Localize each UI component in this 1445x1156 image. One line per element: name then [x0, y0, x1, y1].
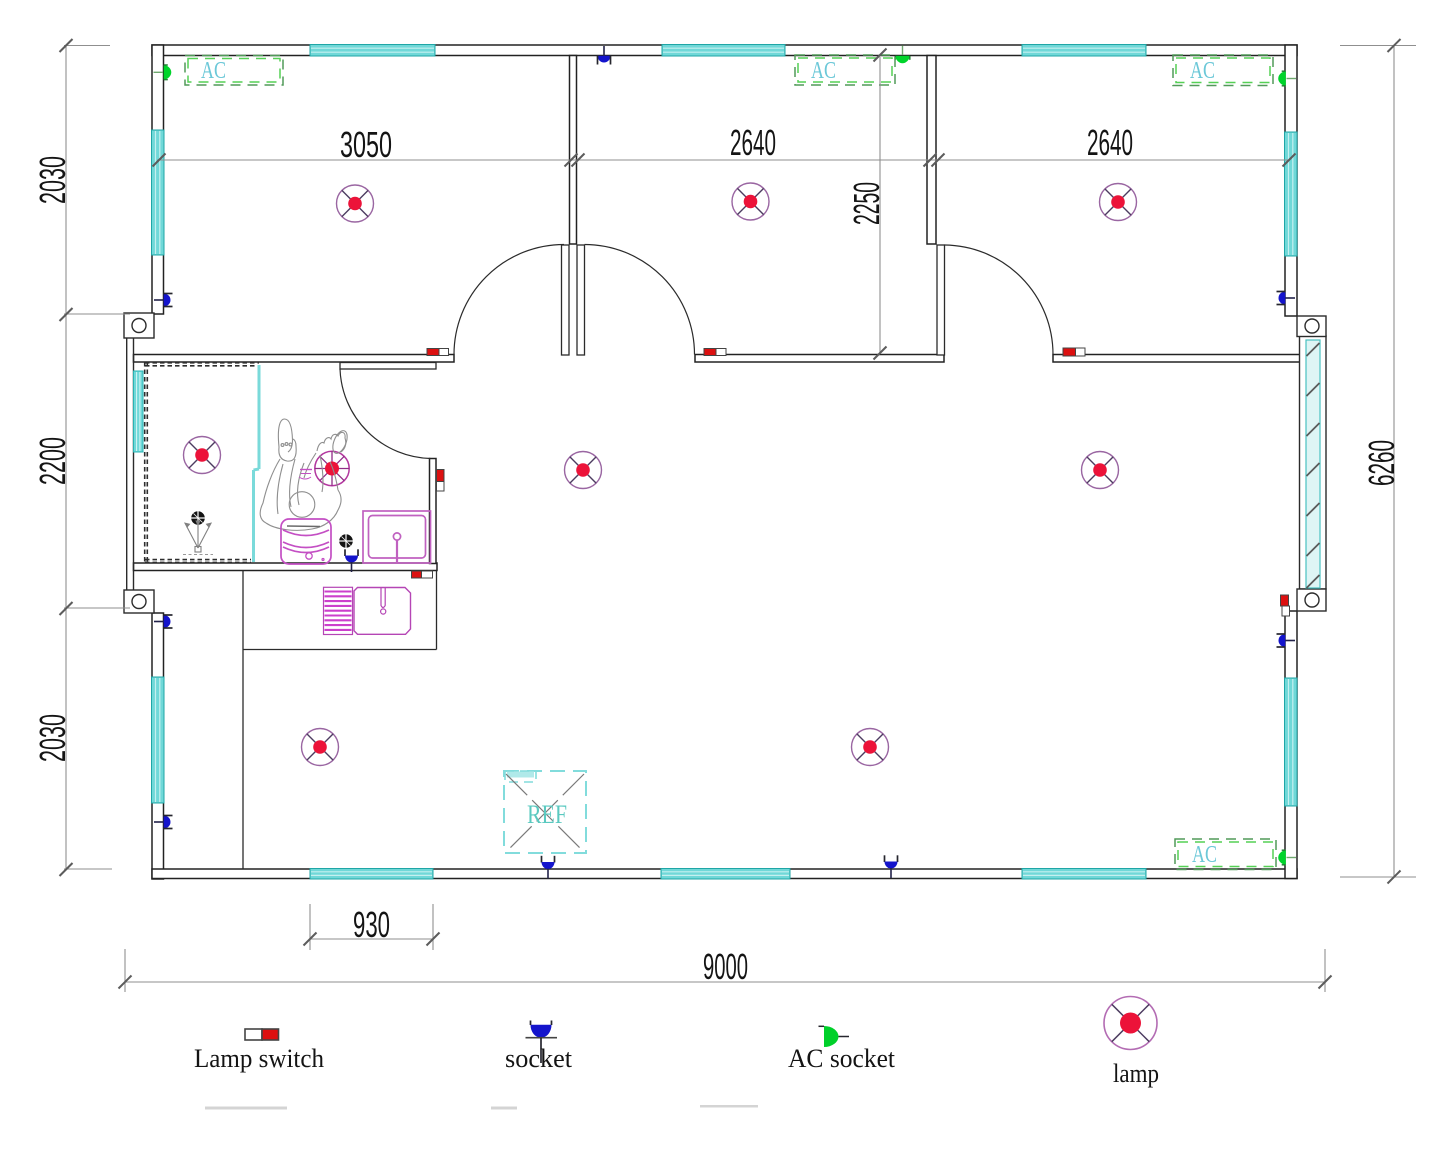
svg-text:socket: socket	[505, 1044, 573, 1073]
svg-text:930: 930	[353, 904, 390, 945]
svg-text:AC: AC	[811, 58, 836, 84]
svg-text:6260: 6260	[1361, 440, 1402, 486]
svg-text:9000: 9000	[703, 946, 748, 987]
svg-text:2030: 2030	[32, 714, 73, 762]
svg-text:AC: AC	[1192, 842, 1217, 868]
svg-text:AC: AC	[1190, 58, 1215, 84]
svg-text:3050: 3050	[340, 124, 392, 165]
svg-text:Lamp switch: Lamp switch	[194, 1044, 324, 1073]
svg-text:2030: 2030	[32, 156, 73, 204]
svg-text:2640: 2640	[1087, 122, 1133, 163]
svg-text:REF: REF	[527, 800, 567, 829]
svg-text:AC socket: AC socket	[788, 1044, 896, 1073]
svg-text:2640: 2640	[730, 122, 776, 163]
svg-text:lamp: lamp	[1113, 1059, 1159, 1088]
svg-text:AC: AC	[201, 58, 226, 84]
svg-text:2200: 2200	[32, 437, 73, 485]
svg-text:2250: 2250	[846, 182, 887, 225]
